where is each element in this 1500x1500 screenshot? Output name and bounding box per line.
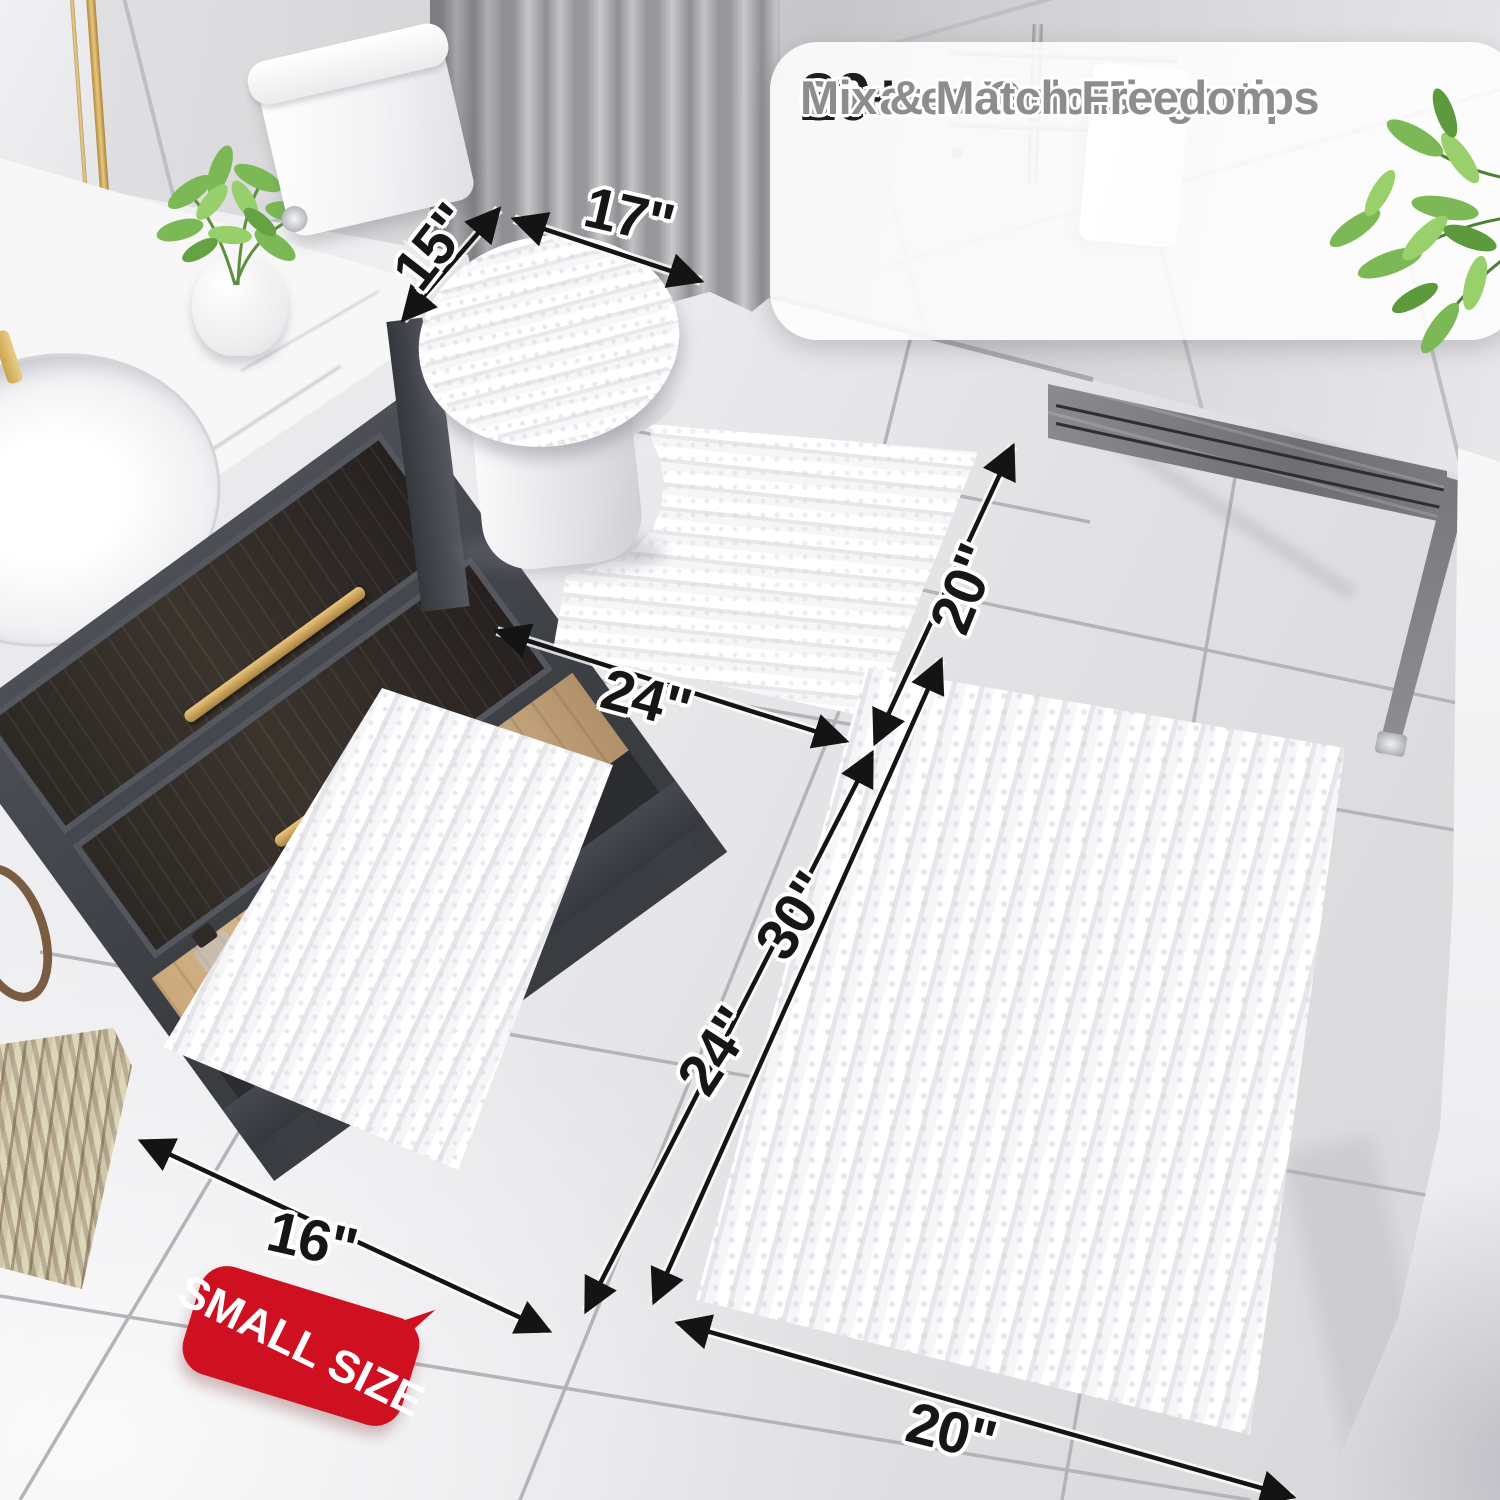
hanging-plant <box>1295 88 1500 353</box>
bathroom-product-image: MISQ <box>0 0 1500 1500</box>
feature-label: Mix & Match Freedom <box>800 70 1276 125</box>
